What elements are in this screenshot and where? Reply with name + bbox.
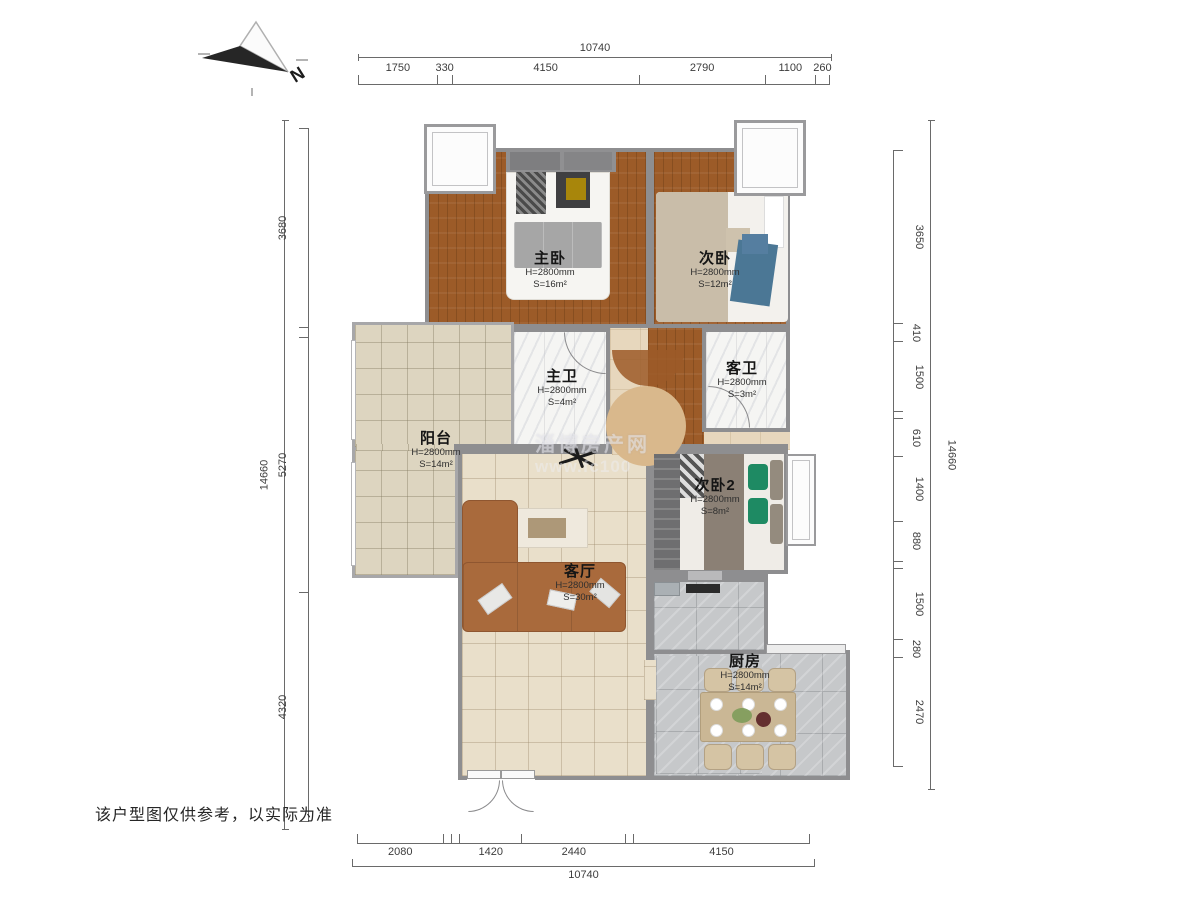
plate [710, 724, 723, 737]
room-name: 次卧2 [660, 477, 770, 494]
room-name: 客卫 [687, 360, 797, 377]
svg-text:N: N [287, 63, 309, 87]
room-height: H=2800mm [687, 378, 797, 389]
room-height: H=2800mm [507, 386, 617, 397]
pillow [770, 504, 783, 544]
plate [774, 698, 787, 711]
window-pane [742, 128, 798, 188]
ceiling-fan-icon [556, 446, 602, 470]
dim-left-segments: 368052704320 [299, 128, 309, 822]
window-top-left [424, 124, 496, 194]
room-label-kitchen: 厨房 H=2800mm S=14m² [690, 653, 800, 694]
dim-segment: 1500 [894, 341, 903, 410]
dim-segment: 4150 [633, 834, 810, 843]
dim-segment: 2440 [521, 834, 625, 843]
stove [686, 584, 720, 593]
entry-door-arc-left [468, 780, 500, 812]
balcony-glass [351, 340, 356, 440]
table-plant [732, 708, 752, 723]
dim-segment [625, 834, 633, 843]
room-label-balcony: 阳台 H=2800mm S=14m² [381, 430, 491, 471]
dim-label: 2470 [913, 700, 925, 724]
wardrobe-door [510, 152, 560, 170]
room-area: S=14m² [690, 683, 800, 694]
room-label-master-bedroom: 主卧 H=2800mm S=16m² [495, 250, 605, 291]
dim-segment [894, 411, 903, 419]
dim-segment: 260 [815, 75, 830, 84]
plate [774, 724, 787, 737]
sink [654, 582, 680, 596]
room-area: S=3m² [687, 390, 797, 401]
room-name: 阳台 [381, 430, 491, 447]
dim-label: 880 [910, 532, 922, 550]
dim-label: 4150 [709, 846, 733, 858]
plate [742, 724, 755, 737]
dim-label: 2790 [690, 62, 714, 74]
dim-segment [894, 561, 903, 568]
room-label-second-bedroom: 次卧 H=2800mm S=12m² [660, 250, 770, 291]
room-height: H=2800mm [690, 671, 800, 682]
entry-door-leaf [501, 770, 535, 779]
room-height: H=2800mm [660, 495, 770, 506]
dim-label: 610 [910, 428, 922, 446]
dim-label: 280 [910, 640, 922, 658]
dim-total-label: 14660 [945, 440, 957, 471]
dim-label: 2080 [388, 846, 412, 858]
dim-segment: 1420 [459, 834, 521, 843]
dim-segment: 1100 [765, 75, 815, 84]
room-height: H=2800mm [660, 268, 770, 279]
room-area: S=8m² [660, 507, 770, 518]
dim-label: 4150 [533, 62, 557, 74]
dim-right-total: 14660 [930, 120, 931, 790]
floorplan-canvas: 主卧 H=2800mm S=16m² 次卧 H=2800mm S=12m² 主卫… [0, 0, 1200, 900]
room-name: 主卫 [507, 368, 617, 385]
balcony-glass [351, 462, 356, 566]
dim-segment [299, 327, 308, 336]
room-label-guest-bath: 客卫 H=2800mm S=3m² [687, 360, 797, 401]
dim-segment: 330 [437, 75, 452, 84]
disclaimer-text: 该户型图仅供参考，以实际为准 [95, 801, 333, 825]
window-pane [432, 132, 488, 186]
room-area: S=30m² [525, 593, 635, 604]
entry-door-leaf [467, 770, 501, 779]
dim-segment: 880 [894, 521, 903, 560]
dim-label: 1500 [913, 592, 925, 616]
dim-label: 1400 [913, 477, 925, 501]
compass-icon: N [196, 16, 314, 100]
dim-right-segments: 36504101500610140088015002802470 [893, 150, 903, 767]
window-pane [792, 460, 810, 540]
dim-bottom-total: 10740 [352, 865, 815, 867]
sliding-door [688, 571, 722, 580]
dim-segment: 1400 [894, 456, 903, 522]
dim-segment: 2470 [894, 657, 903, 767]
room-height: H=2800mm [525, 581, 635, 592]
kitchen-opening [644, 660, 656, 700]
room-area: S=16m² [495, 280, 605, 291]
entry-door-arc-right [502, 780, 534, 812]
dim-segment: 1750 [358, 75, 437, 84]
dim-segment: 5270 [299, 337, 308, 592]
dim-segment: 410 [894, 323, 903, 342]
chair [736, 744, 764, 770]
bay-window-bedroom2 [786, 454, 816, 546]
dim-segment: 2790 [639, 75, 765, 84]
dim-segment: 3680 [299, 128, 308, 327]
dim-label: 1500 [913, 364, 925, 388]
dim-label: 5270 [277, 453, 289, 477]
room-name: 主卧 [495, 250, 605, 267]
dim-segment: 4150 [452, 75, 639, 84]
chair [704, 744, 732, 770]
dim-segment: 2080 [357, 834, 443, 843]
room-name: 次卧 [660, 250, 770, 267]
wardrobe-door [564, 152, 612, 170]
dim-label: 1750 [386, 62, 410, 74]
dim-label: 1100 [779, 62, 803, 74]
dim-segment: 280 [894, 639, 903, 657]
clothes [516, 172, 546, 214]
dim-label: 1420 [478, 846, 502, 858]
dim-segment [443, 834, 451, 843]
room-label-master-bath: 主卫 H=2800mm S=4m² [507, 368, 617, 409]
room-height: H=2800mm [381, 448, 491, 459]
dim-segment [451, 834, 460, 843]
dim-bottom-segments: 2080142024404150 [357, 834, 810, 844]
dim-top-total: 10740 [358, 43, 832, 58]
dim-label: 330 [435, 62, 453, 74]
room-area: S=14m² [381, 460, 491, 471]
dark-plate [756, 712, 771, 727]
room-height: H=2800mm [495, 268, 605, 279]
dim-label: 4320 [277, 695, 289, 719]
dim-total-label: 10740 [580, 42, 611, 54]
room-label-living: 客厅 H=2800mm S=30m² [525, 563, 635, 604]
plate [710, 698, 723, 711]
dim-total-label: 14660 [259, 460, 271, 491]
dim-label: 3650 [913, 225, 925, 249]
coffee-table-tray [528, 518, 566, 538]
dim-total-label: 10740 [568, 869, 599, 881]
clothes [566, 178, 586, 200]
chair [768, 744, 796, 770]
dim-segment: 4320 [299, 592, 308, 822]
pillow [770, 460, 783, 500]
room-area: S=12m² [660, 280, 770, 291]
dim-label: 2440 [562, 846, 586, 858]
dim-label: 260 [813, 62, 831, 74]
room-name: 客厅 [525, 563, 635, 580]
north-arrow: N [196, 16, 314, 105]
room-label-second-bedroom-2: 次卧2 H=2800mm S=8m² [660, 477, 770, 518]
dim-segment: 3650 [894, 150, 903, 323]
dim-label: 3680 [277, 216, 289, 240]
dim-segment: 1500 [894, 568, 903, 640]
dim-label: 410 [910, 323, 922, 341]
window-top-right [734, 120, 806, 196]
dim-segment: 610 [894, 418, 903, 455]
room-name: 厨房 [690, 653, 800, 670]
dim-top-segments: 1750330415027901100260 [358, 75, 830, 85]
room-area: S=4m² [507, 398, 617, 409]
